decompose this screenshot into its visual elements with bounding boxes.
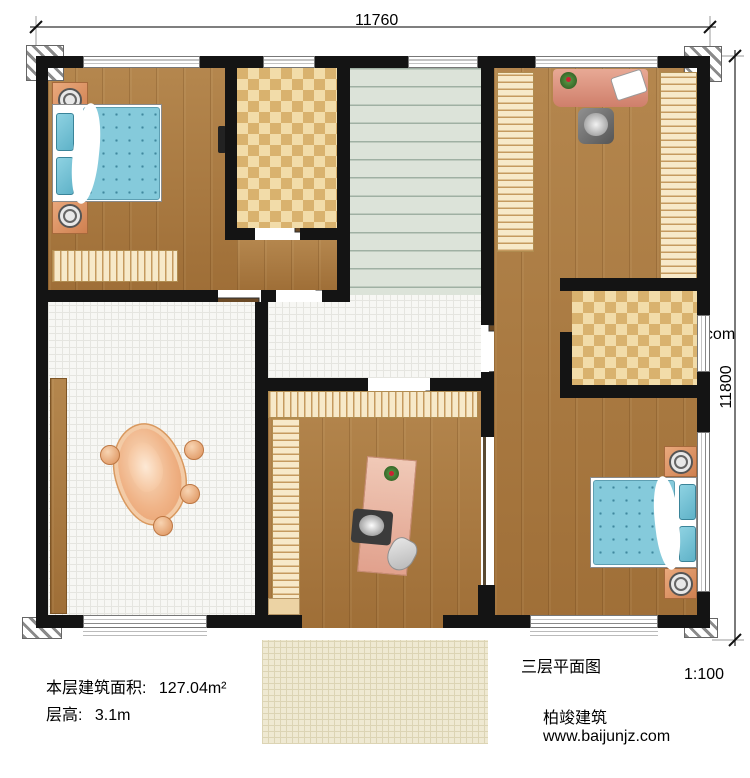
wall-right-1 [697, 56, 710, 315]
window-cloakroom-top [535, 56, 658, 68]
window-bath2-right [697, 315, 710, 372]
sheet-frame [740, 30, 742, 772]
sheet-frame [12, 652, 228, 654]
window-bath1-top [263, 56, 315, 68]
wall-left [36, 56, 48, 628]
bed-bedroom2 [590, 477, 697, 568]
wall-bedroom1-tearoom-a [36, 290, 218, 302]
wardrobe-study-top [268, 391, 478, 418]
wall-tearoom-study [255, 302, 268, 628]
dresser-stool [578, 108, 614, 144]
floor-area-label: 本层建筑面积: [46, 680, 146, 697]
wall-study-top-a [255, 378, 368, 391]
wall-top-2 [200, 56, 263, 68]
pillow [56, 113, 74, 151]
pillow [679, 526, 696, 562]
dimension-right-label: 11800 [718, 357, 736, 417]
floor-area-note: 本层建筑面积: 127.04m² [46, 674, 227, 698]
window-stairs-top [408, 56, 478, 68]
wall-study-bedroom2-stub [478, 585, 495, 628]
wardrobe-study-left [272, 418, 300, 610]
bath1-floor [237, 68, 337, 228]
floor-height-note: 层高: 3.1m [46, 701, 130, 725]
balcony-floor [262, 640, 488, 744]
plan-scale: 1:100 [684, 666, 724, 684]
floor-height-label: 层高: [46, 707, 82, 724]
floor-plan-canvas: 下 上 [0, 0, 750, 778]
brand-block: 柏竣建筑 www.baijunjz.com [543, 704, 670, 746]
tea-stool [153, 516, 173, 536]
wall-stairs-right-b [481, 372, 494, 437]
wall-bedroom1-tearoom-b [261, 290, 276, 302]
partition-study-bedroom2 [483, 437, 486, 585]
tea-stool [180, 484, 200, 504]
title-rule [519, 697, 737, 701]
wall-top-3 [315, 56, 408, 68]
sill-bedroom2 [530, 628, 658, 637]
wall-bedroom1-tearoom-c [322, 290, 350, 302]
plant-icon [560, 72, 577, 89]
wall-study-top-b [430, 378, 481, 391]
bath2-floor [572, 291, 697, 385]
window-tearoom-bottom [83, 615, 207, 628]
sheet-frame [515, 652, 517, 772]
wardrobe-cloakroom-right [660, 72, 697, 282]
wall-stairs-left [337, 56, 350, 302]
nightstand [664, 568, 697, 599]
wardrobe-cloakroom-left [497, 72, 534, 252]
window-bedroom2-bottom [530, 615, 658, 628]
bed-bedroom1 [52, 104, 162, 202]
wall-stairs-right-a [481, 56, 494, 325]
wall-bath2-bottom [560, 385, 697, 398]
window-bedroom2-right [697, 432, 710, 592]
computer-monitor-icon [351, 508, 394, 545]
plant-icon [384, 466, 399, 481]
window-bedroom1-top [83, 56, 200, 68]
wardrobe-bedroom1 [52, 250, 178, 282]
wall-bedroom1-bath1 [225, 68, 237, 228]
sill-tearoom [83, 628, 207, 637]
floor-height-value: 3.1m [95, 707, 131, 724]
brand-site: www.baijunjz.com [543, 728, 670, 745]
nightstand [664, 446, 697, 477]
study-cabinet [268, 598, 300, 615]
tea-stool [100, 445, 120, 465]
floor-area-value: 127.04m² [159, 680, 227, 697]
tearoom-bench [50, 378, 67, 614]
wall-right-2 [697, 372, 710, 432]
wall-bath2-top [560, 278, 697, 291]
wall-right-3 [697, 592, 710, 628]
pillow [679, 484, 696, 520]
corridor-floor [268, 302, 350, 378]
stairs-floor [350, 68, 481, 295]
bedroom1-corridor-floor [237, 240, 337, 290]
stair-landing-floor [348, 295, 481, 378]
wall-bath1-bottom-a [225, 228, 255, 240]
dimension-top-label: 11760 [355, 12, 398, 30]
sheet-frame [228, 652, 230, 772]
tea-stool [184, 440, 204, 460]
brand-name: 柏竣建筑 [543, 710, 607, 727]
plan-title: 三层平面图 [521, 653, 601, 677]
